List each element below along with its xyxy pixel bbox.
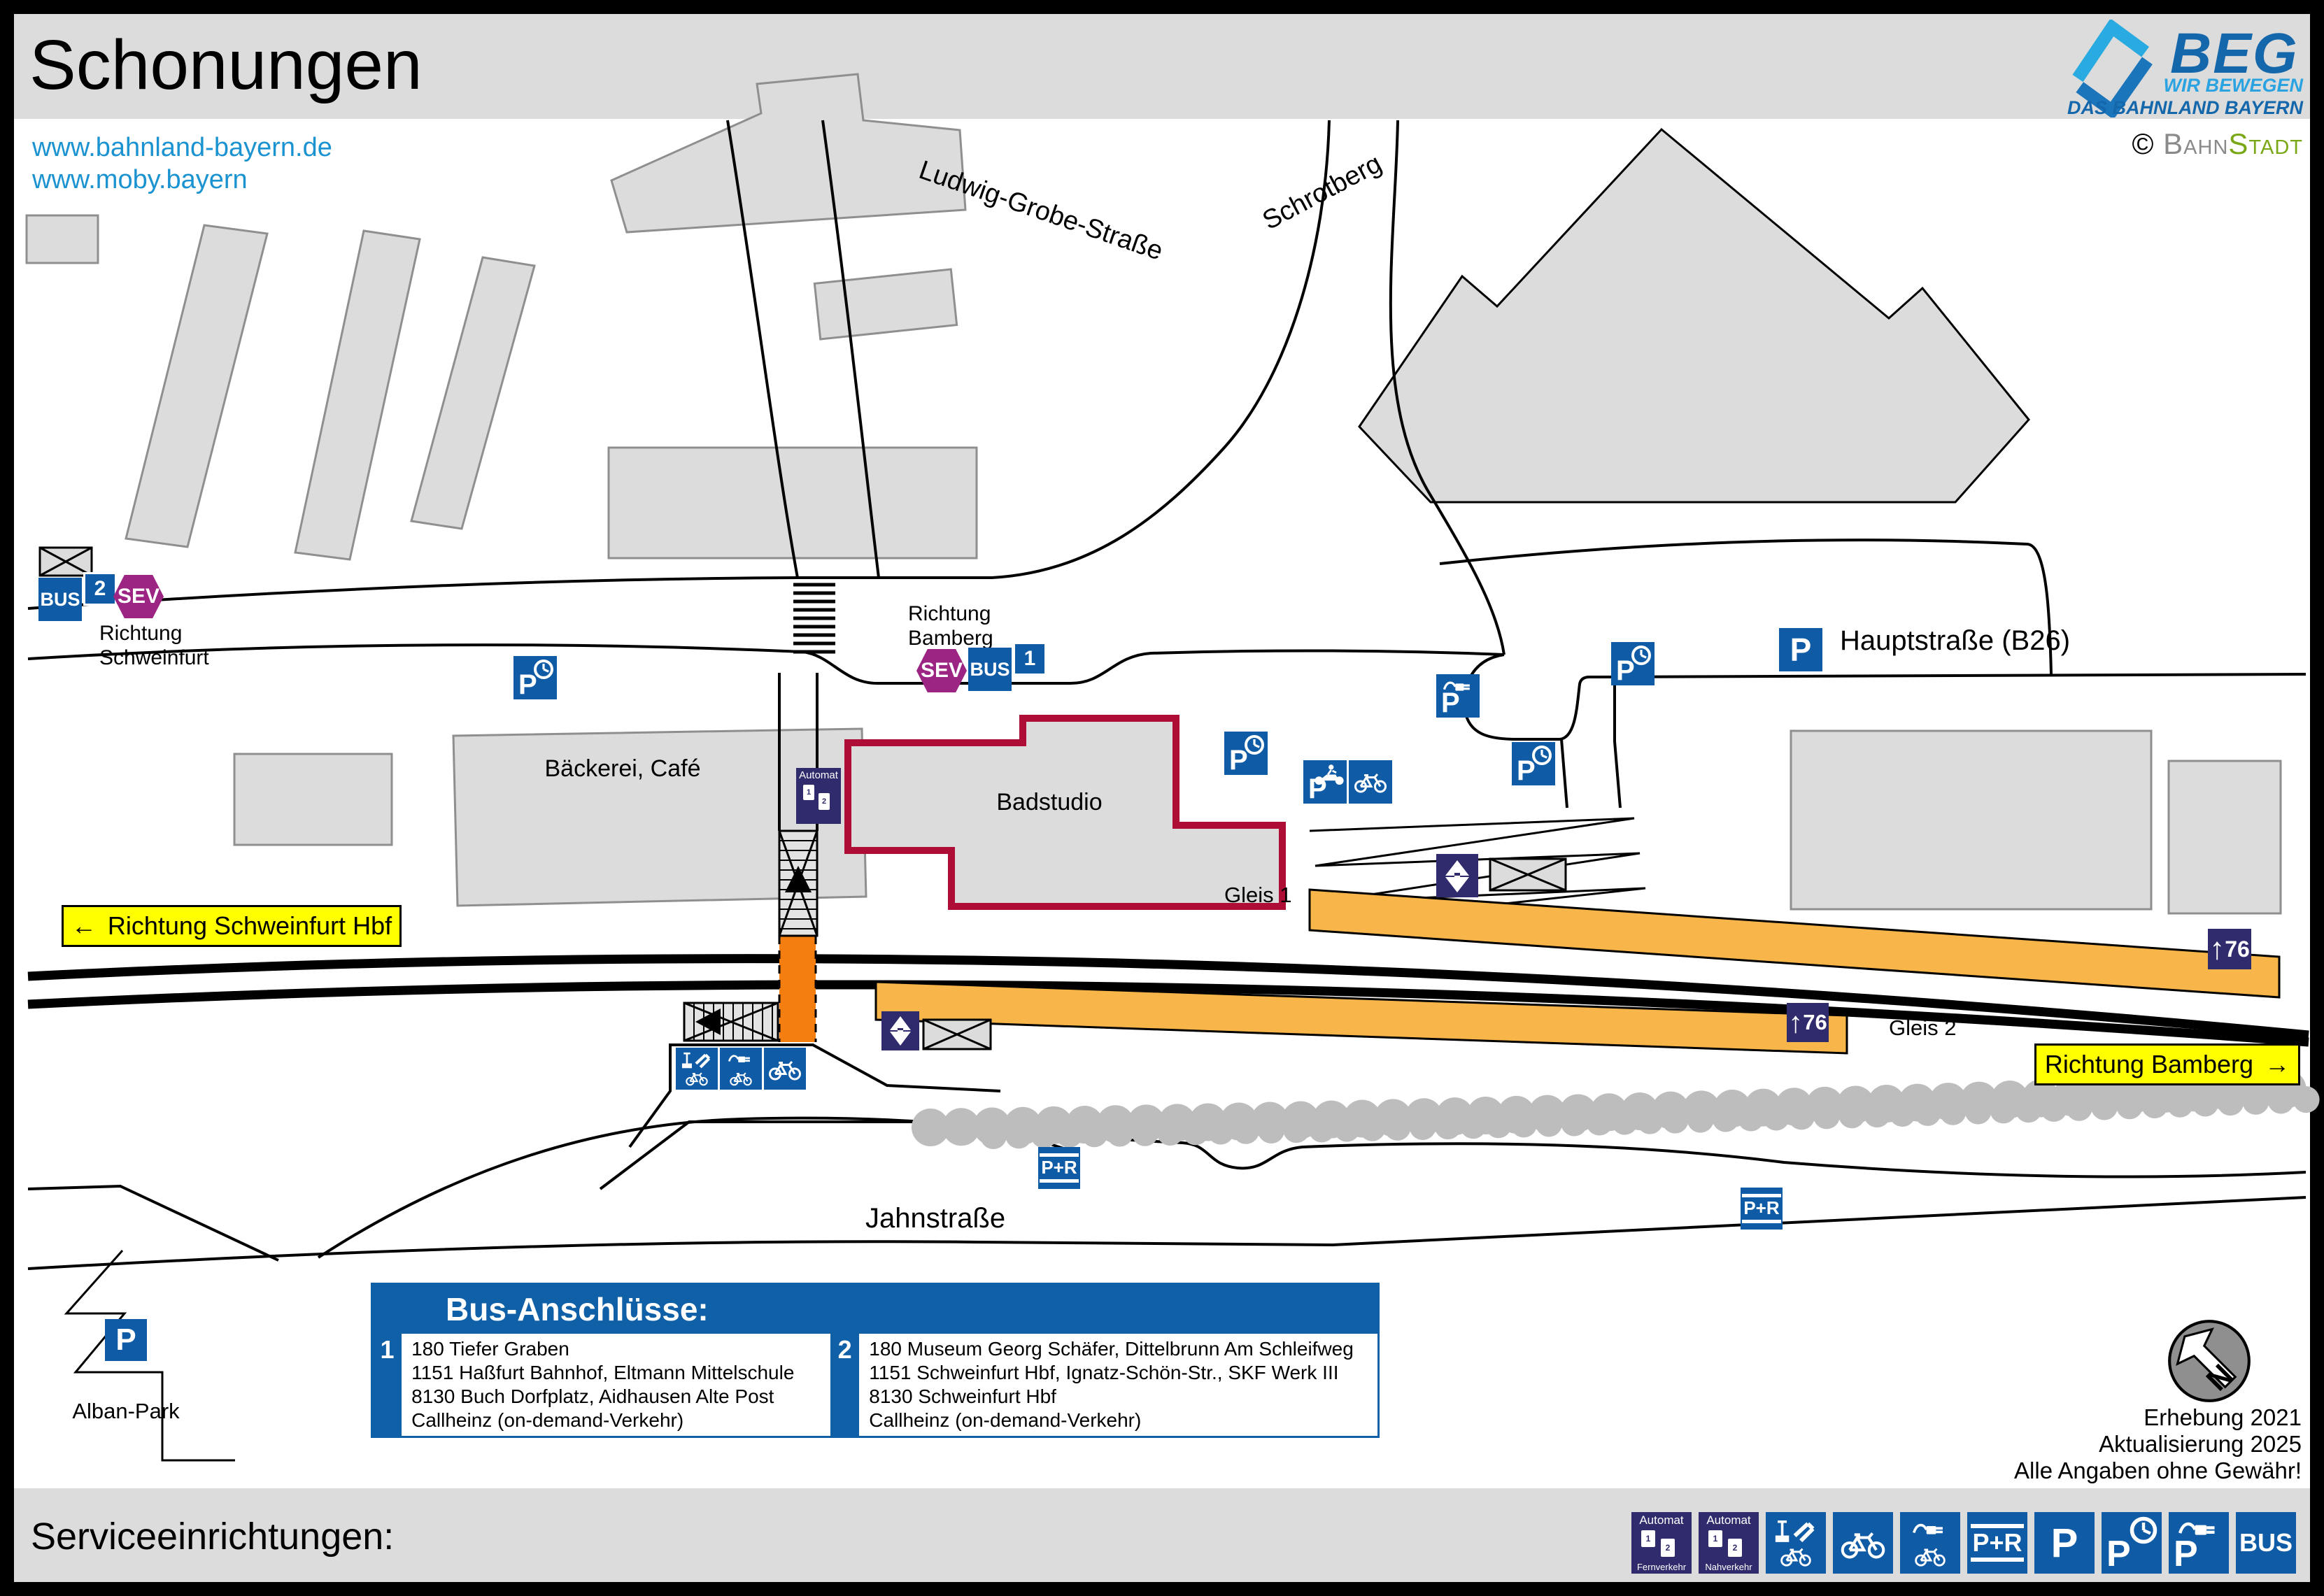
parking-time-icon: P [1611, 642, 1655, 685]
stairs-west [684, 1003, 778, 1041]
machine-number: 2 [1666, 1543, 1671, 1553]
building-label-badstudio: Badstudio [972, 789, 1126, 816]
nahverkehr-label: Nahverkehr [1699, 1562, 1759, 1572]
note-line: Alle Angaben ohne Gewähr! [1952, 1458, 2302, 1484]
pr-label: P+R [1742, 1194, 1780, 1223]
bus-label: BUS [40, 589, 80, 611]
parking-icon-alban: P [105, 1319, 147, 1361]
park-and-ride-icon: P+R [1741, 1188, 1783, 1230]
direction-line: Richtung [99, 621, 209, 646]
p-letter: P [1790, 631, 1812, 669]
building-label-baeckerei: Bäckerei, Café [490, 755, 756, 783]
bus-stop-west-number: 2 [83, 572, 117, 606]
bike-plug-icon [723, 1050, 759, 1088]
bus-connections-box: Bus-Anschlüsse: 1 180 Tiefer Graben 1151… [371, 1283, 1380, 1438]
platform-length-gleis1: ↑ 76 [2208, 929, 2251, 969]
motorcycle-icon [1313, 763, 1345, 785]
note-line: Erhebung 2021 [1952, 1404, 2302, 1431]
bus-group-number: 1 [373, 1334, 402, 1436]
legend-bike-repair [1766, 1512, 1826, 1574]
footer-title: Serviceeinrichtungen: [31, 1515, 394, 1558]
bicycle-icon [1839, 1526, 1887, 1560]
park-and-ride-icon: P+R [1038, 1147, 1080, 1189]
left-arrow-icon: ← [71, 911, 97, 941]
direction-west-text: Richtung Schweinfurt Hbf [108, 911, 392, 941]
direction-east-text: Richtung Bamberg [2045, 1050, 2253, 1079]
up-arrow-icon: ↑ [2209, 934, 2225, 964]
fernverkehr-label: Fernverkehr [1631, 1562, 1692, 1572]
machine-number: 1 [1646, 1534, 1651, 1544]
parking-echarge-icon: P [1436, 674, 1480, 718]
direction-line: Schweinfurt [99, 646, 209, 670]
label-gleis1: Gleis 1 [1224, 883, 1291, 908]
pr-label: P+R [1971, 1524, 2023, 1562]
stairs-north [779, 831, 817, 936]
legend-park-and-ride: P+R [1967, 1512, 2027, 1574]
machine-number: 1 [1713, 1534, 1718, 1544]
parking-time-icon: P [1512, 742, 1555, 785]
length-value: 76 [1803, 1010, 1827, 1035]
sev-label: SEV [921, 659, 963, 682]
bus-line: 1151 Schweinfurt Hbf, Ignatz-Schön-Str.,… [869, 1361, 1382, 1385]
street-label-haupt: Hauptstraße (B26) [1840, 625, 2070, 657]
clock-icon [1630, 644, 1652, 667]
bicycle-icon [1353, 769, 1388, 794]
parking-motorcycle-icon: P [1303, 760, 1347, 804]
bike-parking-icon [764, 1048, 806, 1090]
sev-label: SEV [118, 585, 160, 608]
street-label-jahn: Jahnstraße [865, 1203, 1005, 1234]
repair-icon [679, 1050, 715, 1088]
legend-bike-charge [1900, 1512, 1960, 1574]
bus-stop-east-direction: Richtung Bamberg [908, 601, 993, 650]
survey-notes: Erhebung 2021 Aktualisierung 2025 Alle A… [1952, 1404, 2302, 1484]
direction-line: Bamberg [908, 626, 993, 650]
bus-stop-west-icon: BUS [38, 578, 82, 621]
station-map-page: Schonungen BEG WIR BEWEGEN DAS BAHNLAND … [0, 0, 2324, 1596]
bus-group-number: 2 [830, 1334, 859, 1436]
bus-connections-title: Bus-Anschlüsse: [373, 1285, 1377, 1334]
bike-repair-icon [676, 1048, 718, 1090]
elevator-icon-gleis2 [881, 1011, 919, 1050]
shelter-bus-west [40, 548, 92, 576]
shelter-gleis1 [1490, 859, 1566, 890]
legend-parking-echarge: P [2169, 1512, 2229, 1574]
bus-line: 180 Museum Georg Schäfer, Dittelbrunn Am… [869, 1337, 1382, 1361]
bus-group-2: 2 180 Museum Georg Schäfer, Dittelbrunn … [830, 1334, 1382, 1436]
automat-label: Automat [1631, 1513, 1692, 1527]
p-letter: P [2051, 1520, 2078, 1567]
alban-park-boundary [66, 1251, 235, 1460]
bus-line: 180 Tiefer Graben [411, 1337, 826, 1361]
length-value: 76 [2225, 936, 2250, 962]
bus-line: 8130 Schweinfurt Hbf [869, 1385, 1382, 1409]
bus-stop-east-number: 1 [1013, 642, 1047, 676]
automat-label: Automat [796, 769, 841, 781]
bike-plug-icon [1905, 1516, 1955, 1570]
automat-label: Automat [1699, 1513, 1759, 1527]
parking-icon: P [1779, 628, 1822, 671]
stop-number: 1 [1024, 647, 1036, 671]
direction-east-box: Richtung Bamberg → [2034, 1043, 2300, 1085]
platform-length-gleis2: ↑ 76 [1787, 1003, 1829, 1042]
north-arrow-icon: N [2166, 1318, 2253, 1404]
bike-charge-icon [720, 1048, 762, 1090]
bike-parking-icon [1349, 760, 1392, 804]
legend-automat-fern: Automat 1 2 Fernverkehr [1631, 1512, 1692, 1574]
bus-line: 8130 Buch Dorfplatz, Aidhausen Alte Post [411, 1385, 826, 1409]
bus-line: Callheinz (on-demand-Verkehr) [411, 1409, 826, 1432]
up-arrow-icon: ↑ [1788, 1008, 1803, 1037]
elevator-icon-gleis1 [1436, 854, 1478, 897]
ticket-machine-icon: Automat 1 2 [796, 768, 841, 824]
machine-number: 2 [1733, 1543, 1738, 1553]
bus-line: 1151 Haßfurt Bahnhof, Eltmann Mittelschu… [411, 1361, 826, 1385]
legend-parking-time: P [2102, 1512, 2162, 1574]
clock-icon [1531, 744, 1553, 767]
track-crossing [779, 936, 816, 1042]
bus-label: BUS [2239, 1528, 2293, 1558]
note-line: Aktualisierung 2025 [1952, 1431, 2302, 1458]
pr-label: P+R [1040, 1153, 1078, 1182]
machine-number: 2 [822, 797, 826, 806]
label-gleis2: Gleis 2 [1889, 1016, 1956, 1041]
bicycle-icon [767, 1056, 802, 1081]
legend-bus: BUS [2236, 1512, 2296, 1574]
p-letter: P [115, 1323, 136, 1358]
bus-line: Callheinz (on-demand-Verkehr) [869, 1409, 1382, 1432]
parking-time-icon: P [513, 656, 557, 699]
legend-automat-nah: Automat 1 2 Nahverkehr [1699, 1512, 1759, 1574]
direction-west-box: ← Richtung Schweinfurt Hbf [62, 905, 402, 947]
p-letter: P [2106, 1535, 2131, 1574]
parking-time-icon: P [1224, 732, 1268, 775]
plug-icon [1440, 677, 1477, 697]
hedge-band [930, 1088, 2309, 1136]
zebra-crossing [793, 585, 835, 652]
clock-icon [2128, 1515, 2159, 1546]
stop-number: 2 [94, 577, 106, 601]
clock-icon [532, 658, 555, 681]
clock-icon [1243, 734, 1266, 756]
legend-bike-parking [1833, 1512, 1893, 1574]
bus-stop-east-icon: BUS [968, 648, 1012, 691]
legend-parking: P [2034, 1512, 2095, 1574]
machine-number: 1 [807, 788, 811, 797]
label-alban-park: Alban-Park [42, 1399, 210, 1424]
bus-label: BUS [970, 659, 1009, 681]
plug-icon [2174, 1516, 2225, 1543]
shelter-gleis2 [923, 1020, 991, 1049]
right-arrow-icon: → [2265, 1050, 2290, 1079]
repair-icon [1771, 1516, 1821, 1570]
bus-group-1: 1 180 Tiefer Graben 1151 Haßfurt Bahnhof… [373, 1334, 826, 1436]
direction-line: Richtung [908, 601, 993, 626]
bus-stop-west-direction: Richtung Schweinfurt [99, 621, 209, 670]
